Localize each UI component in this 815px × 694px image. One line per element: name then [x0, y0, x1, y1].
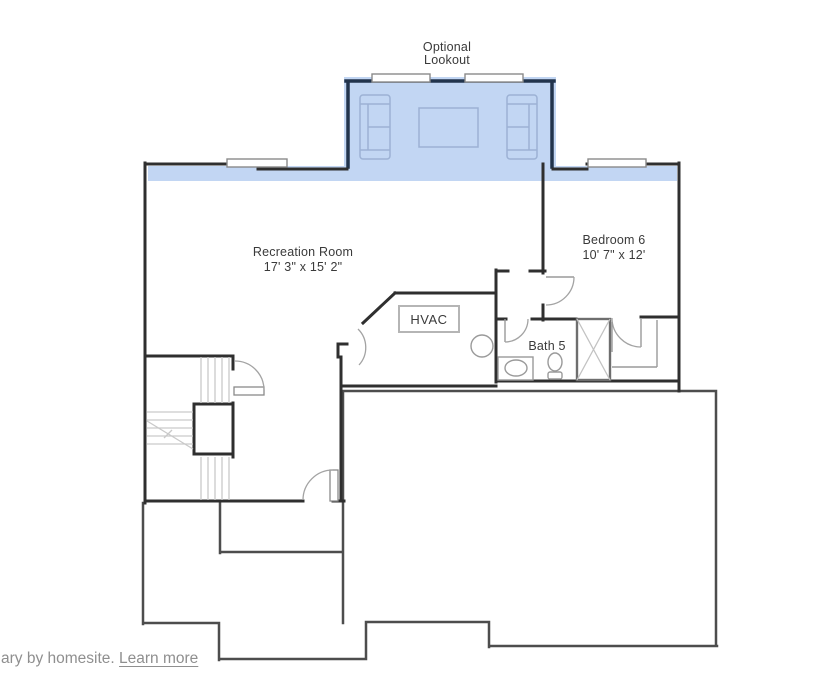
- window-bedroom6: [588, 159, 646, 167]
- hvac-door-arc: [358, 329, 366, 365]
- bedroom6-label: Bedroom 6: [583, 233, 646, 247]
- recreation-room-dims: 17' 3" x 15' 2": [264, 260, 343, 274]
- footer-disclaimer: ary by homesite. Learn more: [1, 650, 198, 668]
- water-heater: [471, 335, 493, 357]
- toilet-bowl: [548, 353, 562, 371]
- staircase: [147, 357, 229, 500]
- closet-shelving: [612, 320, 657, 367]
- bedroom6-door-arc: [546, 277, 574, 305]
- lookout-bump-fill: [344, 77, 556, 168]
- rec-room-door-arc: [303, 470, 333, 500]
- learn-more-link[interactable]: Learn more: [119, 650, 198, 667]
- toilet-tank: [548, 372, 562, 379]
- rec-room-door-leaf: [330, 470, 338, 501]
- stair-direction-line: [147, 421, 193, 449]
- stair-direction-tick: [164, 430, 172, 438]
- floor-plan-drawing: Optional Lookout Recreation Room 17' 3" …: [0, 0, 815, 694]
- stair-walls: [147, 356, 233, 457]
- bedroom6-dims: 10' 7" x 12': [582, 248, 645, 262]
- unfinished-area-walls: [143, 391, 717, 660]
- bath5-door-arc: [505, 319, 528, 342]
- hvac-label: HVAC: [410, 312, 447, 327]
- lookout-band-fill: [148, 166, 677, 181]
- stair-door-leaf: [234, 387, 264, 395]
- window-lookout-right: [465, 74, 523, 82]
- optional-lookout-label-line1: Optional: [423, 40, 471, 54]
- footer-text: ary by homesite.: [1, 650, 115, 667]
- sink: [505, 360, 527, 376]
- optional-lookout-label-line2: Lookout: [424, 53, 470, 67]
- recreation-room-label: Recreation Room: [253, 245, 353, 259]
- floor-plan-page: Optional Lookout Recreation Room 17' 3" …: [0, 0, 815, 694]
- window-recreation: [227, 159, 287, 167]
- window-lookout-left: [372, 74, 430, 82]
- stair-door-arc: [235, 361, 264, 390]
- bath5-label: Bath 5: [528, 339, 565, 353]
- closet-door-arc: [612, 318, 641, 347]
